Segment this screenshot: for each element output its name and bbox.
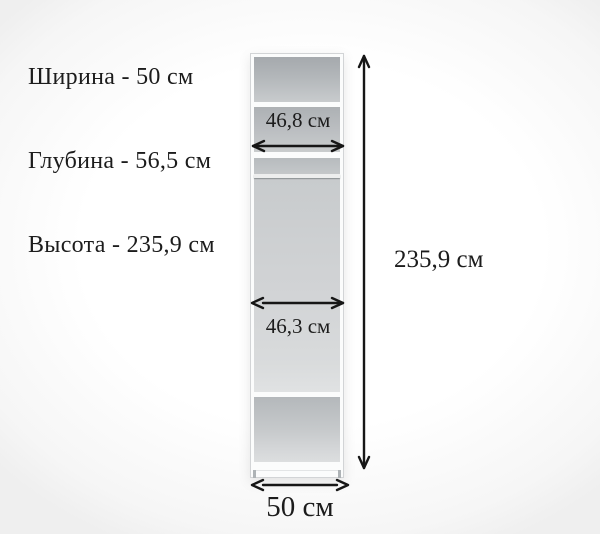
plinth-notch-left [253,470,256,478]
hanging-width-label: 46,3 см [250,314,346,339]
hanging-compartment [254,158,340,392]
hanging-width-arrow-icon [249,295,346,311]
clothes-rod [254,174,340,178]
height-label: 235,9 см [394,246,483,274]
spec-width: Ширина - 50 см [28,63,215,91]
overall-width-label: 50 см [246,491,354,524]
height-arrow-icon [354,52,374,472]
plinth-notch-right [338,470,341,478]
lower-shelf-compartment [254,397,340,462]
plinth-line [254,470,340,471]
top-shelf-compartment [254,57,340,102]
spec-depth: Глубина - 56,5 см [28,147,215,175]
spec-height: Высота - 235,9 см [28,231,215,259]
spec-text-block: Ширина - 50 см Глубина - 56,5 см Высота … [28,7,215,315]
upper-shelf-width-arrow-icon [250,138,346,154]
wardrobe-dimension-diagram: Ширина - 50 см Глубина - 56,5 см Высота … [0,0,600,534]
upper-shelf-width-label: 46,8 см [250,108,346,133]
